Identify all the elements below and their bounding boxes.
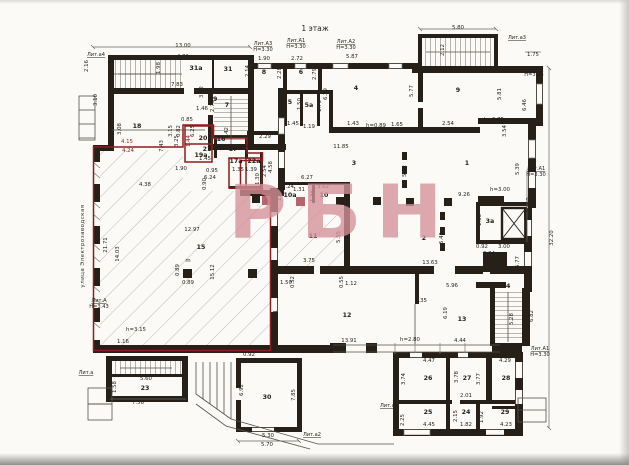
dimension-label: 5.96 <box>446 283 459 289</box>
scanned-floor-plan-page: 1 этажЛит.а413.004.812.161.9831a3.63312.… <box>0 0 629 465</box>
building-letter-label: Н=3.30 <box>286 44 305 50</box>
dimension-label: 4.29 <box>499 358 512 364</box>
room-number-label: 6 <box>299 69 304 76</box>
dimension-label: 1.46 <box>196 106 209 112</box>
dimension-label: 1.35 <box>232 167 244 173</box>
dimension-label: 1.44 <box>186 134 192 147</box>
dimension-label: 3.54 <box>502 124 508 137</box>
dimension-label: 6.29 <box>323 87 329 100</box>
dimension-label: 3.78 <box>454 370 460 383</box>
room-number-label: 20 <box>199 135 208 142</box>
dimension-label: 5.30 <box>262 433 275 439</box>
dimension-label: m <box>185 258 190 264</box>
dimension-label: 4.24 <box>122 148 135 154</box>
room-number-label: 4 <box>354 85 359 92</box>
dimension-label: 4.38 <box>139 182 152 188</box>
dimension-label: 3.75 <box>303 258 315 264</box>
room-number-label: 10a <box>283 192 296 199</box>
dimension-label: 1.92 <box>479 411 485 423</box>
dimension-label: 5.87 <box>346 54 358 60</box>
room-number-label: 11 <box>309 233 318 240</box>
dimension-label: 3.36 <box>486 202 499 208</box>
room-number-label: 13 <box>458 316 467 323</box>
room-number-label: 7 <box>225 102 229 109</box>
dimension-label: 11.85 <box>333 144 348 150</box>
dimension-label: 32.20 <box>549 230 555 246</box>
building-letter-label: Лит.а1 <box>380 403 398 409</box>
dimension-label: 1.50 <box>297 97 303 110</box>
building-letter-label: Н=3.30 <box>336 45 355 51</box>
room-number-label: 22 <box>267 145 276 152</box>
room-number-label: 31 <box>224 66 233 73</box>
room-number-label: 14 <box>502 283 511 290</box>
room-number-label: 5 <box>288 99 292 106</box>
building-letter-label: Лит.а <box>79 370 94 376</box>
room-number-label: 19a <box>194 152 207 159</box>
dimension-label: 0.89 <box>175 263 181 276</box>
dimension-label: 2.79 <box>312 67 318 80</box>
dimension-label: 3.62 <box>317 184 329 190</box>
dimension-label: 3.02 <box>199 86 205 98</box>
dimension-label: 3.10 <box>93 93 99 106</box>
dimension-label: 2.12 <box>440 44 446 56</box>
dimension-label: 7.56 <box>132 400 145 406</box>
dimension-label: 1.82 <box>460 422 472 428</box>
dimension-label: 2.15 <box>453 410 459 422</box>
room-number-label: 25 <box>424 409 433 416</box>
dimension-label: 4.81 <box>177 54 189 60</box>
dimension-label: h=0.89 <box>366 123 387 129</box>
dimension-label: 5.71 <box>273 310 279 322</box>
dimension-label: 1.39 <box>245 167 258 173</box>
dimension-label: 7.83 <box>171 82 183 88</box>
dimension-label: 1.19 <box>303 124 316 130</box>
dimension-label: 0.85 <box>181 117 193 123</box>
dimension-label: 3.74 <box>401 372 407 385</box>
room-number-label: 15 <box>197 244 206 251</box>
dimension-label: h=3.15 <box>126 327 146 333</box>
floor-title: 1 этаж <box>301 24 328 33</box>
dimension-label: 12.50 <box>526 197 532 213</box>
dimension-label: 9.26 <box>458 192 471 198</box>
room-number-label: 29 <box>501 409 510 416</box>
dimension-label: 2.72 <box>291 56 303 62</box>
building-letter-label: Н=3.30 <box>526 172 545 178</box>
dimension-label: 2.16 <box>84 59 90 72</box>
dimension-label: h=3.00 <box>490 187 511 193</box>
building-letter-label: Лит.а2 <box>303 432 321 438</box>
room-number-label: 17a <box>229 158 242 165</box>
dimension-label: 13.00 <box>175 43 191 49</box>
room-number-label: 9 <box>456 87 460 94</box>
building-letter-label: Лит.а4 <box>87 52 105 58</box>
building-letter-label: Н=3.43 <box>89 304 108 310</box>
dimension-label: 5.81 <box>497 88 503 100</box>
dimension-label: 0.89 <box>182 280 195 286</box>
dimension-label: 2.54 <box>442 121 455 127</box>
dimension-label: 4.23 <box>500 422 512 428</box>
dimension-label: 1.30 <box>255 172 261 185</box>
dimension-label: 3.16 <box>182 362 188 375</box>
stair-annex-bottom-left <box>113 361 181 374</box>
dimension-label: 1.65 <box>391 122 403 128</box>
dimension-label: 12.97 <box>184 227 199 233</box>
dimension-label: 1.36 <box>310 189 316 202</box>
room-number-label: 23 <box>141 385 150 392</box>
dimension-label: 21.71 <box>103 237 109 252</box>
room-number-label: 17 <box>229 146 238 153</box>
dimension-label: 1.90 <box>258 56 271 62</box>
dimension-label: 2.01 <box>460 393 472 399</box>
dimension-label: h=2.80 <box>400 337 421 343</box>
room-number-label: 10 <box>320 192 329 199</box>
room-number-label: 2 <box>422 235 426 242</box>
room-number-label: 18 <box>133 123 142 130</box>
room-number-label: 26 <box>424 375 433 382</box>
dimension-label: 6.92 <box>394 380 400 392</box>
dimension-label: 6.27 <box>301 175 313 181</box>
dimension-label: 5.80 <box>452 25 465 31</box>
dimension-label: 0.52 <box>290 276 296 288</box>
building-letter-label: Лит.а3 <box>508 35 526 41</box>
dimension-label: 1.45 <box>287 121 299 127</box>
room-number-label: 22a <box>247 158 260 165</box>
photo-edge-right <box>619 0 629 465</box>
dimension-label: 1.43 <box>347 121 359 127</box>
dimension-label: 3.63 <box>218 56 230 62</box>
dimension-label: 13.91 <box>341 338 356 344</box>
building-letter-label: Н=3.35 <box>524 72 543 78</box>
room-number-label: 27 <box>463 375 472 382</box>
dimension-label: 1.58 <box>112 380 118 393</box>
dimension-label: 0.95 <box>206 168 218 174</box>
dimension-label: 1.48 <box>277 188 283 201</box>
dimension-label: 2.96 <box>501 345 514 351</box>
dimension-label: 1.90 <box>175 166 188 172</box>
room-number-label: 30 <box>263 394 272 401</box>
dimension-label: 4.47 <box>423 358 435 364</box>
dimension-label: 3.08 <box>117 122 123 135</box>
dimension-label: 0.34 <box>483 251 496 257</box>
dimension-label: 0.90 <box>202 177 208 190</box>
building-letter-label: Н=3.30 <box>253 47 272 53</box>
dimension-label: 3.77 <box>476 373 482 385</box>
room-number-label: 28 <box>502 375 511 382</box>
floor-plan-svg: 1 этажЛит.а413.004.812.161.9831a3.63312.… <box>0 0 629 465</box>
dimension-label: 5.39 <box>515 162 521 175</box>
dimension-label: 7.46 <box>344 222 350 235</box>
dimension-label: 0.92 <box>243 352 255 358</box>
dimension-label: 1.04 <box>509 120 522 126</box>
dimension-label: 7.85 <box>291 389 297 401</box>
dimension-label: 2.29 <box>259 134 272 140</box>
dimension-label: 5.28 <box>509 312 515 325</box>
room-number-label: 24 <box>462 409 471 416</box>
dimension-label: 7.43 <box>159 140 165 152</box>
dimension-label: 14.03 <box>115 246 121 261</box>
room-number-label: 1 <box>465 160 469 167</box>
dimension-label: 5.77 <box>409 85 415 97</box>
street-name-label: улица Электрозаводская <box>80 204 86 287</box>
dimension-label: 4.58 <box>268 160 274 173</box>
dimension-label: 5.50 <box>234 88 247 94</box>
dimension-label: 6.19 <box>443 306 449 319</box>
dimension-label: 1.12 <box>345 281 357 287</box>
elevator-shaft <box>502 208 526 239</box>
dimension-label: 2.73 <box>210 100 216 112</box>
dimension-label: 1.42 <box>224 127 230 139</box>
dimension-label: 15.12 <box>210 264 216 279</box>
dimension-label: 1.35 <box>415 298 427 304</box>
room-number-label: 3a <box>486 218 495 225</box>
dimension-label: 5.70 <box>261 442 274 448</box>
dimension-label: 3.00 <box>498 244 511 250</box>
dimension-label: 4.44 <box>454 338 467 344</box>
dimension-label: 5.55 <box>336 231 342 243</box>
photo-edge-bottom <box>0 453 629 465</box>
dimension-label: 5.41 <box>439 232 445 244</box>
room-number-label: 31a <box>189 65 202 72</box>
room-number-label: 12 <box>343 312 352 319</box>
dimension-label: 1.16 <box>117 339 130 345</box>
dimension-label: 2.28 <box>277 66 283 79</box>
dimension-label: 4.45 <box>423 422 435 428</box>
dimension-label: 1.70 <box>317 99 323 112</box>
dimension-label: 1.98 <box>156 61 162 74</box>
dimension-label: 5.60 <box>140 376 153 382</box>
room-number-label: 3 <box>352 160 356 167</box>
dimension-label: 4.15 <box>121 139 133 145</box>
dimension-label: 1.42 <box>241 144 253 150</box>
room-number-label: 5a <box>305 102 314 109</box>
dimension-label: 0.92 <box>476 244 488 250</box>
dimension-label: 3.25 <box>174 135 180 147</box>
room-number-label: 8 <box>262 69 266 76</box>
stair-annex-top-right <box>418 34 498 70</box>
dimension-label: 0.96 <box>108 120 114 133</box>
dimension-label: 13.63 <box>422 260 437 266</box>
dimension-label: 6.46 <box>522 98 528 111</box>
dimension-label: 1.66 <box>477 213 483 226</box>
dimension-label: 6.92 <box>239 384 245 396</box>
dimension-label: 5.77 <box>515 256 521 268</box>
photo-edge-top <box>0 0 629 4</box>
dimension-label: 11.29 <box>449 67 465 73</box>
dimension-label: 2.25 <box>400 414 406 426</box>
dimension-label: h=2.85 <box>484 117 504 123</box>
dimension-label: 2.14 <box>245 64 251 77</box>
building-letter-label: Н=3.30 <box>530 352 549 358</box>
dimension-label: 6.82 <box>529 310 535 322</box>
dimension-label: 1.75 <box>527 52 539 58</box>
dimension-label: 5.42 <box>402 165 408 177</box>
